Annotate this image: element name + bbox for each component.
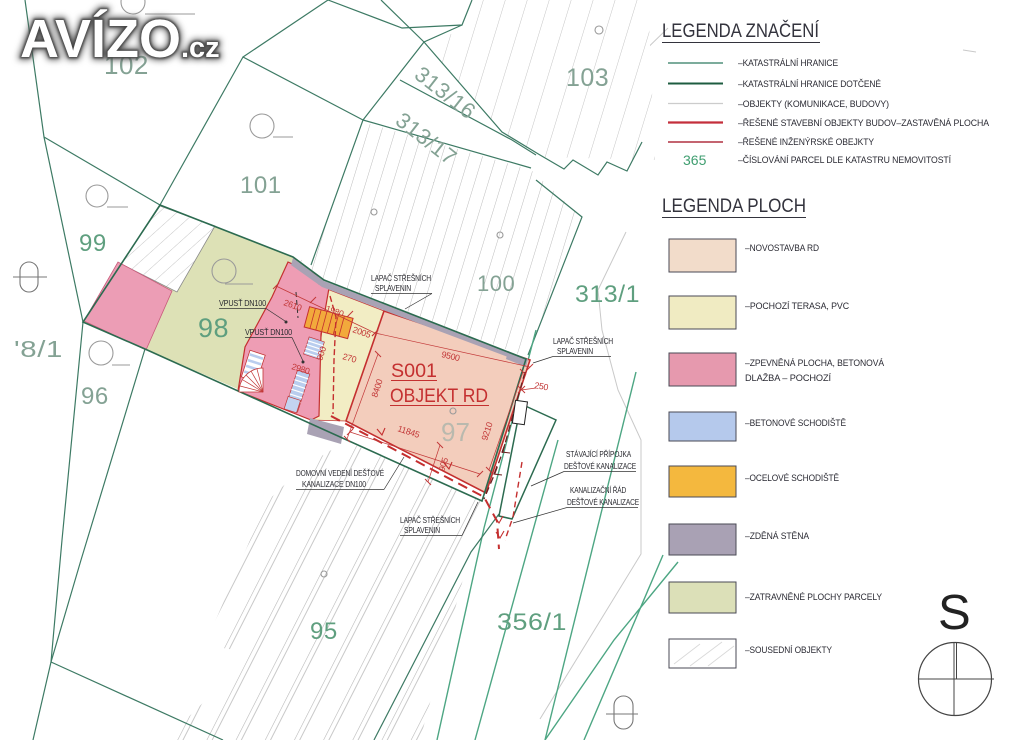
svg-text:LAPAČ STŘEŠNÍCH: LAPAČ STŘEŠNÍCH <box>371 273 431 283</box>
svg-text:SPLAVENIN: SPLAVENIN <box>404 525 440 535</box>
svg-text:LEGENDA ZNAČENÍ: LEGENDA ZNAČENÍ <box>662 20 820 42</box>
svg-text:DEŠŤOVÉ KANALIZACE: DEŠŤOVÉ KANALIZACE <box>564 461 636 471</box>
svg-text:–ZPEVNĚNÁ PLOCHA, BETONOVÁ: –ZPEVNĚNÁ PLOCHA, BETONOVÁ <box>745 358 885 369</box>
svg-text:S001: S001 <box>391 360 437 382</box>
svg-text:'8/1: '8/1 <box>14 336 63 362</box>
svg-text:–KATASTRÁLNÍ HRANICE: –KATASTRÁLNÍ HRANICE <box>738 58 838 69</box>
svg-text:LEGENDA PLOCH: LEGENDA PLOCH <box>662 196 806 217</box>
svg-text:DLAŽBA – POCHOZÍ: DLAŽBA – POCHOZÍ <box>745 373 831 384</box>
svg-text:–ŘEŠENÉ STAVEBNÍ OBJEKTY BUDOV: –ŘEŠENÉ STAVEBNÍ OBJEKTY BUDOV–ZASTAVĚNÁ… <box>738 118 990 129</box>
svg-text:99: 99 <box>79 230 107 257</box>
svg-text:100: 100 <box>477 271 515 296</box>
svg-text:96: 96 <box>81 383 109 410</box>
svg-text:–NOVOSTAVBA RD: –NOVOSTAVBA RD <box>745 243 819 254</box>
svg-text:OBJEKT RD: OBJEKT RD <box>390 385 488 407</box>
svg-text:DEŠŤOVÉ KANALIZACE: DEŠŤOVÉ KANALIZACE <box>567 497 639 507</box>
svg-text:103: 103 <box>566 64 609 92</box>
svg-text:–ŘEŠENÉ INŽENÝRSKÉ OBEJKTY: –ŘEŠENÉ INŽENÝRSKÉ OBEJKTY <box>738 137 875 148</box>
svg-text:VPUSŤ DN100: VPUSŤ DN100 <box>245 327 292 337</box>
svg-text:DOMOVNÍ VEDENÍ DEŠŤOVÉ: DOMOVNÍ VEDENÍ DEŠŤOVÉ <box>296 468 384 478</box>
svg-text:KANALIZAČNÍ ŘÁD: KANALIZAČNÍ ŘÁD <box>570 485 626 495</box>
svg-text:–OBJEKTY (KOMUNIKACE, BUDOVY): –OBJEKTY (KOMUNIKACE, BUDOVY) <box>738 99 889 110</box>
svg-text:–OCELOVÉ SCHODIŠTĚ: –OCELOVÉ SCHODIŠTĚ <box>745 473 839 484</box>
svg-text:95: 95 <box>310 618 338 645</box>
svg-text:–ČÍSLOVÁNÍ PARCEL DLE KATASTRU: –ČÍSLOVÁNÍ PARCEL DLE KATASTRU NEMOVITOS… <box>738 155 951 166</box>
svg-text:–KATASTRÁLNÍ HRANICE DOTČENÉ: –KATASTRÁLNÍ HRANICE DOTČENÉ <box>738 79 881 90</box>
svg-text:313/1: 313/1 <box>575 281 640 308</box>
svg-text:KANALIZACE DN100: KANALIZACE DN100 <box>302 479 366 489</box>
svg-text:–BETONOVÉ SCHODIŠTĚ: –BETONOVÉ SCHODIŠTĚ <box>745 418 846 429</box>
svg-text:LAPAČ STŘEŠNÍCH: LAPAČ STŘEŠNÍCH <box>400 515 460 525</box>
svg-text:SPLAVENIN: SPLAVENIN <box>375 283 411 293</box>
svg-text:–ZATRAVNĚNÉ PLOCHY PARCELY: –ZATRAVNĚNÉ PLOCHY PARCELY <box>745 592 883 603</box>
svg-text:97: 97 <box>441 417 470 447</box>
svg-text:101: 101 <box>240 172 282 199</box>
svg-text:LAPAČ STŘEŠNÍCH: LAPAČ STŘEŠNÍCH <box>553 336 613 346</box>
svg-text:VPUSŤ DN100: VPUSŤ DN100 <box>219 298 266 308</box>
svg-text:SPLAVENIN: SPLAVENIN <box>557 346 593 356</box>
svg-text:S: S <box>938 586 971 640</box>
svg-text:–SOUSEDNÍ OBJEKTY: –SOUSEDNÍ OBJEKTY <box>745 645 833 656</box>
svg-text:98: 98 <box>198 313 229 343</box>
svg-text:–ZDĚNÁ STĚNA: –ZDĚNÁ STĚNA <box>745 531 810 542</box>
svg-text:–POCHOZÍ TERASA, PVC: –POCHOZÍ TERASA, PVC <box>745 301 849 312</box>
svg-text:365: 365 <box>683 152 707 168</box>
svg-text:STÁVAJÍCÍ PŘÍPOJKA: STÁVAJÍCÍ PŘÍPOJKA <box>566 449 631 459</box>
svg-text:356/1: 356/1 <box>497 609 567 636</box>
